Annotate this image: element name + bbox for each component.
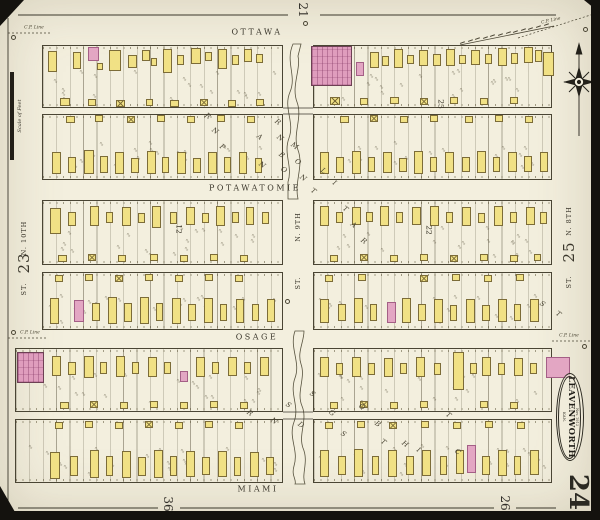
sanborn-map-sheet: OTTAWA POTAWATOMIE OSAGE MIAMI N. 10TH 2… (0, 0, 600, 520)
reference-mark (11, 330, 16, 335)
street-label-osage: OSAGE (236, 333, 279, 342)
stamp-name: LEAVENWORTH (566, 376, 575, 458)
page-ref-25: 25 (560, 241, 578, 262)
page-ref-23: 23 (15, 252, 33, 273)
corporation-line-note: C.P. Line (20, 331, 40, 336)
stamp-date: Nov. 1913 (575, 408, 579, 426)
block-number: 23 (437, 99, 446, 109)
map-linework (0, 0, 600, 520)
reference-mark (285, 299, 290, 304)
street-label-n10th: N. 10TH (20, 221, 28, 256)
street-label-n9th-st: ST. (294, 277, 302, 290)
leavenworth-stamp: Nov. 1913 LEAVENWORTH KAN. (556, 373, 584, 461)
block-number: 22 (425, 225, 434, 235)
street-label-n8th-st: ST. (565, 276, 573, 289)
sheet-border (8, 15, 556, 508)
reference-mark (582, 344, 587, 349)
street-label-ottawa: OTTAWA (232, 28, 283, 37)
block-number: 12 (175, 224, 184, 234)
reference-mark (583, 27, 588, 32)
corporation-line-note: C.P. Line (24, 26, 44, 31)
photo-edge-right (591, 0, 600, 520)
corporation-line-note: C.P. Line (559, 334, 579, 339)
street-label-potawatomie: POTAWATOMIE (209, 184, 301, 193)
page-ref-26: 26 (498, 495, 512, 510)
page-ref-21: 21 (296, 2, 310, 17)
reference-mark (303, 21, 308, 26)
reference-mark (11, 35, 16, 40)
scale-bar (10, 72, 14, 160)
photo-edge-bottom (0, 511, 600, 520)
creek (287, 44, 305, 484)
sheet-number-24: 24 (563, 474, 593, 510)
stamp-state: KAN. (562, 412, 566, 422)
page-ref-36: 36 (161, 496, 175, 511)
compass-rose (564, 44, 594, 136)
street-label-miami: MIAMI (238, 485, 279, 494)
street-label-n9th: N. 9TH (294, 212, 302, 242)
street-label-n10th-st: ST. (20, 283, 28, 296)
block-diagonal-edge (460, 26, 554, 45)
scale-label: Scale of Feet (17, 100, 23, 133)
street-label-n8th: N. 8TH (565, 206, 573, 236)
